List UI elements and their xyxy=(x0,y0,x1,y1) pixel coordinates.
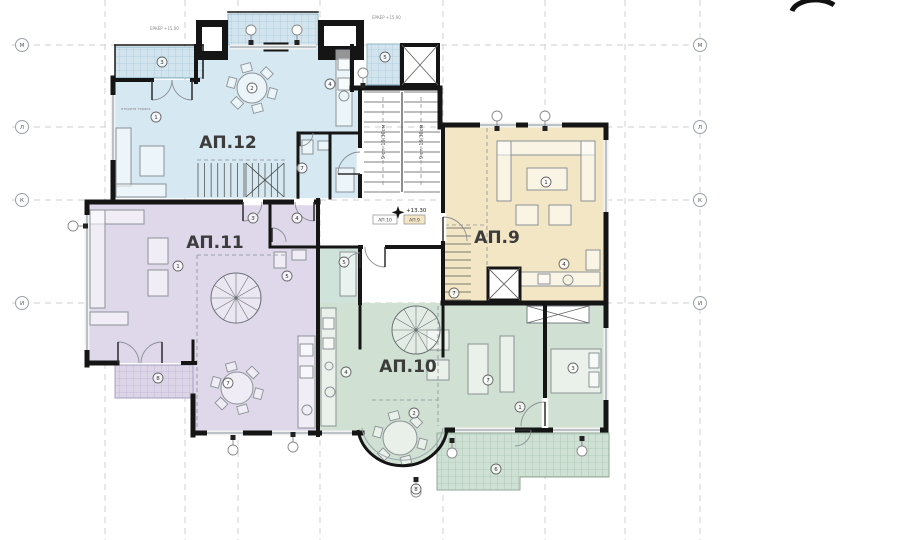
furniture-rect xyxy=(116,184,166,197)
room-number: 5 xyxy=(285,274,289,280)
room-number: 8 xyxy=(414,487,418,493)
furniture-rect xyxy=(549,205,571,225)
furniture-rect xyxy=(520,272,600,286)
furniture-rect xyxy=(148,238,168,264)
terrace-ap12-north xyxy=(228,14,318,45)
room-number: 4 xyxy=(295,216,299,222)
grid-bubble-label: И xyxy=(698,301,702,307)
room-number: 3 xyxy=(160,60,164,66)
bay-block-left-inner xyxy=(202,27,222,51)
apartment-label-ap9: АП.9 xyxy=(474,228,520,248)
window-tag-icon xyxy=(540,111,550,121)
furniture-rect xyxy=(500,336,514,392)
window-tag-icon xyxy=(228,445,238,455)
dining-table xyxy=(221,372,253,404)
window-tag-icon xyxy=(447,448,457,458)
stair-flight-label-1: 9 ст. 15/30см xyxy=(381,125,387,160)
window-tag-tick xyxy=(543,126,548,131)
annotation-text: ЕРКЕР +15.00 xyxy=(150,26,179,31)
room-number: 3 xyxy=(571,366,575,372)
furniture-rect xyxy=(589,353,599,368)
room-number: 3 xyxy=(251,216,255,222)
grid-bubble-label: К xyxy=(20,198,24,204)
room-number: 1 xyxy=(154,115,158,121)
room-number: 1 xyxy=(176,264,180,270)
window-tag-icon xyxy=(68,221,78,231)
grid-bubble-label: К xyxy=(698,198,702,204)
grid-bubble-label: М xyxy=(698,43,703,49)
room-number: 4 xyxy=(344,370,348,376)
window-tag-icon xyxy=(358,68,368,78)
furniture-rect xyxy=(589,372,599,387)
window-tag-tick xyxy=(450,438,455,443)
furniture-rect xyxy=(581,141,595,201)
room-number: 8 xyxy=(156,376,160,382)
window-tag-tick xyxy=(83,224,88,229)
furniture-rect xyxy=(338,78,350,90)
furniture-rect xyxy=(274,252,286,268)
floor-plan-drawing: МЛКИМЛКИ 32147517853414772345618АП.10АП.… xyxy=(0,0,900,540)
furniture-rect xyxy=(497,141,511,201)
floor-plan-canvas: МЛКИМЛКИ 32147517853414772345618АП.10АП.… xyxy=(0,0,900,540)
furniture-rect xyxy=(468,344,488,394)
room-number: 7 xyxy=(486,378,490,384)
apartment-label-ap11: АП.11 xyxy=(186,233,244,253)
terrace-ap12-east xyxy=(367,44,400,85)
room-number: 2 xyxy=(250,86,254,92)
window-tag-tick xyxy=(361,83,366,88)
furniture-rect xyxy=(140,146,164,176)
furniture-rect xyxy=(300,344,313,356)
window-tag-icon xyxy=(577,446,587,456)
window-tag-tick xyxy=(231,435,236,440)
window-tag-tick xyxy=(495,126,500,131)
entry-label: АП.9 xyxy=(409,218,420,224)
elevation-value: +13.30 xyxy=(406,208,427,214)
grid-bubble-label: Л xyxy=(698,125,702,131)
furniture-rect xyxy=(497,141,595,155)
furniture-rect xyxy=(116,128,131,186)
room-number: 1 xyxy=(518,405,522,411)
room-number: 7 xyxy=(226,381,230,387)
room-number: 7 xyxy=(452,291,456,297)
furniture-rect xyxy=(292,250,306,260)
apartment-label-ap12: АП.12 xyxy=(199,133,257,153)
room-number: 2 xyxy=(412,411,416,417)
grid-bubble-label: М xyxy=(20,43,25,49)
furniture-rect xyxy=(90,210,105,308)
window-tag-tick xyxy=(295,40,300,45)
stair-flight-label-2: 9 ст. 15/30см xyxy=(419,125,425,160)
annotation-text: открита тераса xyxy=(121,107,150,111)
apartment-label-ap10: АП.10 xyxy=(379,357,437,377)
window-tag-icon xyxy=(492,111,502,121)
spiral-stair-center xyxy=(234,296,237,299)
furniture-rect xyxy=(148,270,168,296)
furniture-rect xyxy=(538,274,550,284)
room-number: 1 xyxy=(544,180,548,186)
furniture-rect xyxy=(516,205,538,225)
room-number: 5 xyxy=(383,55,387,61)
furniture-rect xyxy=(318,141,330,150)
furniture-rect xyxy=(90,312,128,325)
dining-table xyxy=(383,421,417,455)
bay-block-right-inner xyxy=(324,26,356,46)
furniture-rect xyxy=(300,366,313,378)
room-number: 6 xyxy=(494,467,498,473)
window-tag-icon xyxy=(246,25,256,35)
furniture-rect xyxy=(323,338,334,349)
furniture-rect xyxy=(336,168,354,192)
window-tag-tick xyxy=(580,436,585,441)
room-number: 4 xyxy=(328,82,332,88)
window-tag-tick xyxy=(249,40,254,45)
spiral-stair-center xyxy=(414,328,417,331)
grid-bubble-label: И xyxy=(20,301,24,307)
furniture-rect xyxy=(323,318,334,329)
window-tag-icon xyxy=(288,442,298,452)
grid-bubble-label: Л xyxy=(20,125,24,131)
annotation-text: ЕРКЕР +15.00 xyxy=(372,15,401,20)
furniture-rect xyxy=(302,140,313,154)
room-number: 4 xyxy=(562,262,566,268)
window-tag-icon xyxy=(292,25,302,35)
room-number: 7 xyxy=(300,166,304,172)
room-number: 5 xyxy=(342,260,346,266)
furniture-rect xyxy=(338,58,350,70)
window-tag-tick xyxy=(414,477,419,482)
furniture-rect xyxy=(586,250,600,270)
window-tag-tick xyxy=(291,432,296,437)
entry-label: АП.10 xyxy=(378,218,392,224)
